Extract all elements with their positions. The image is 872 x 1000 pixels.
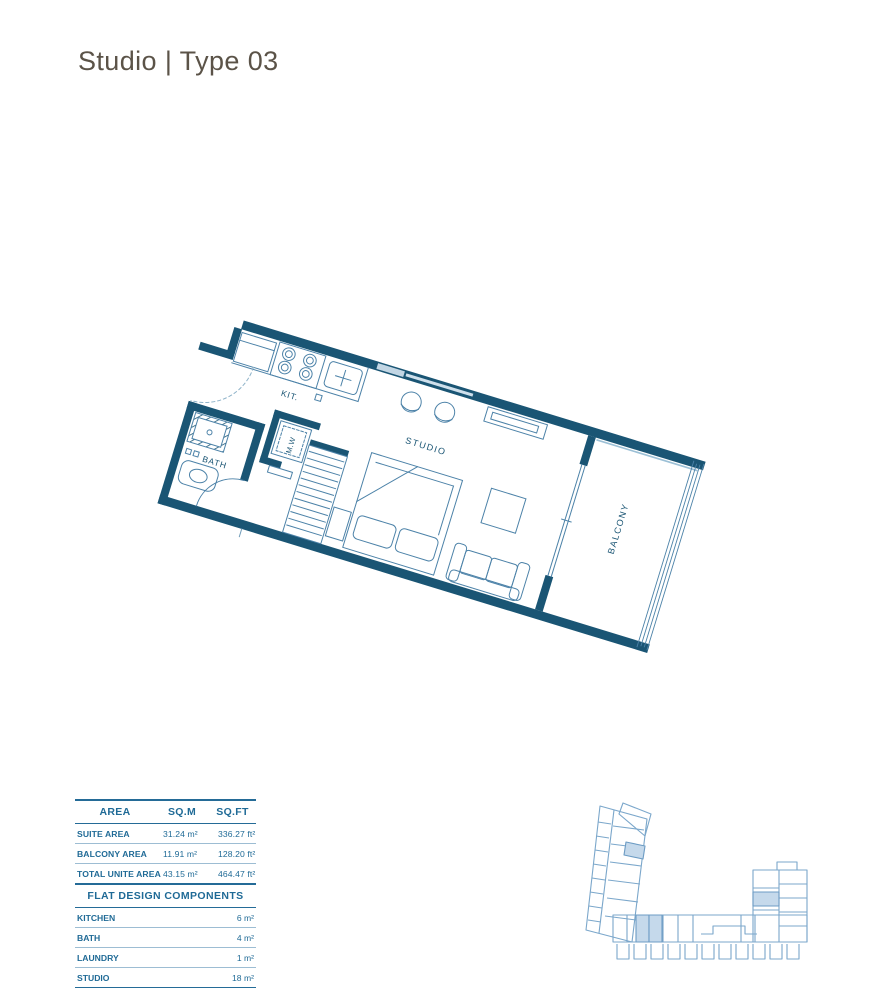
- row-sqft: 464.47 ft²: [218, 869, 258, 879]
- table-row: LAUNDRY 1 m²: [75, 948, 256, 968]
- floor-plan: KIT. BATH M.W STUDIO BALCONY: [150, 300, 735, 665]
- row-sqft: 336.27 ft²: [218, 829, 258, 839]
- row-sqft: 128.20 ft²: [218, 849, 258, 859]
- components-table-title: FLAT DESIGN COMPONENTS: [75, 884, 256, 908]
- col-header-area: AREA: [75, 806, 155, 818]
- page-title: Studio | Type 03: [78, 46, 279, 77]
- col-header-sqft: SQ.FT: [209, 806, 256, 818]
- balcony-label: BALCONY: [606, 502, 631, 555]
- components-table: FLAT DESIGN COMPONENTS KITCHEN 6 m² BATH…: [75, 884, 256, 988]
- keyplan-highlight-unit: [753, 892, 779, 906]
- bar-stools: [399, 390, 457, 425]
- keyplan-highlight-unit: [636, 915, 649, 942]
- row-label: LAUNDRY: [77, 953, 119, 963]
- keyplan-highlight-unit: [624, 842, 645, 859]
- area-table: AREA SQ.M SQ.FT SUITE AREA 31.24 m² 336.…: [75, 799, 256, 884]
- row-label: BATH: [77, 933, 100, 943]
- row-label: STUDIO: [77, 973, 109, 983]
- brochure-page: Studio | Type 03: [0, 0, 872, 1000]
- studio-label: STUDIO: [404, 435, 447, 457]
- row-label: SUITE AREA: [77, 829, 163, 839]
- keyplan-bottom-strip: [613, 915, 807, 959]
- keyplan-right-wing: [753, 862, 807, 942]
- table: [481, 488, 526, 533]
- table-row: SUITE AREA 31.24 m² 336.27 ft²: [75, 824, 256, 844]
- kitchen-label: KIT.: [280, 388, 300, 403]
- area-table-header: AREA SQ.M SQ.FT: [75, 799, 256, 824]
- key-plan: [583, 802, 863, 992]
- leader-tick: [239, 529, 241, 537]
- table-row: BATH 4 m²: [75, 928, 256, 948]
- row-value: 4 m²: [237, 933, 254, 943]
- balcony-door: [545, 464, 588, 578]
- table-row: TOTAL UNITE AREA 43.15 m² 464.47 ft²: [75, 864, 256, 884]
- row-value: 6 m²: [237, 913, 254, 923]
- balcony-railing: [637, 461, 704, 650]
- table-row: BALCONY AREA 11.91 m² 128.20 ft²: [75, 844, 256, 864]
- col-header-sqm: SQ.M: [155, 806, 209, 818]
- row-label: KITCHEN: [77, 913, 115, 923]
- microwave-label: M.W: [284, 435, 298, 454]
- keyplan-highlight-unit: [649, 915, 662, 942]
- wall-label-chip: [376, 363, 405, 377]
- table-row: KITCHEN 6 m²: [75, 908, 256, 928]
- row-sqm: 31.24 m²: [163, 829, 218, 839]
- row-sqm: 43.15 m²: [163, 869, 218, 879]
- row-value: 18 m²: [232, 973, 254, 983]
- row-value: 1 m²: [237, 953, 254, 963]
- row-sqm: 11.91 m²: [163, 849, 218, 859]
- row-label: BALCONY AREA: [77, 849, 163, 859]
- table-row: STUDIO 18 m²: [75, 968, 256, 988]
- row-label: TOTAL UNITE AREA: [77, 869, 163, 879]
